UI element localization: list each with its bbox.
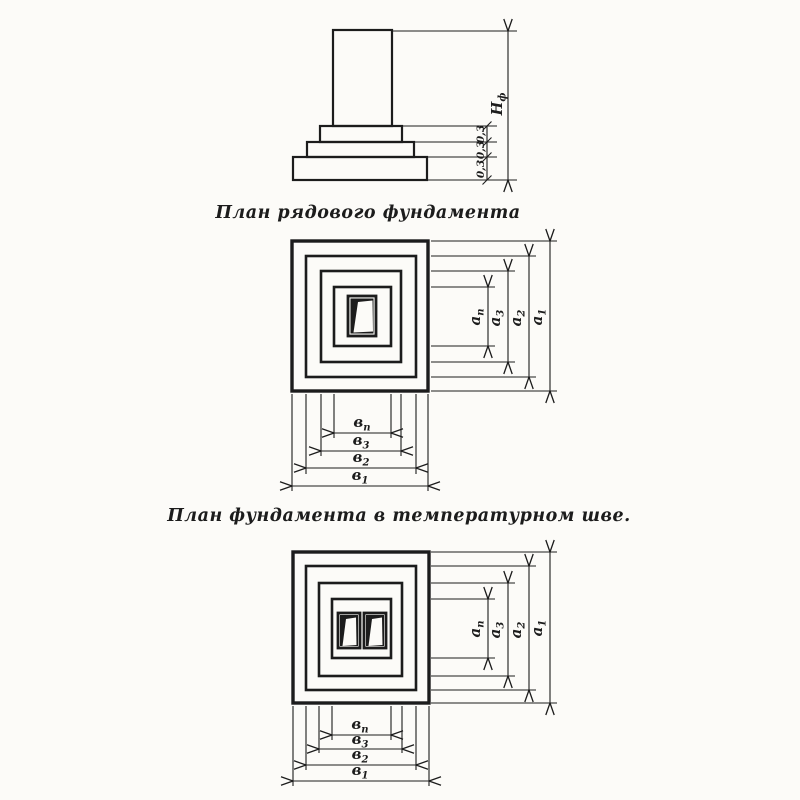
elevation-step-1 (320, 126, 402, 142)
dim-label-a2: а2 (507, 622, 528, 639)
plan-ordinary-title: План рядового фундамента (214, 203, 520, 223)
elevation-column (333, 30, 392, 126)
dim-label-step-1: 0,3 (475, 125, 487, 143)
dim-label-a3: а3 (486, 310, 507, 327)
plan2-column-socket-right (364, 613, 386, 648)
foundation-drawing-svg: Нф 0,3 0,3 0,3 План рядового фундамента … (0, 0, 800, 800)
dim-label-a1: а1 (528, 309, 549, 326)
plan2-column-socket-left (338, 613, 360, 648)
elevation-section: Нф 0,3 0,3 0,3 (293, 30, 517, 185)
dim-label-hf: Нф (489, 93, 509, 117)
dim-label-a2: а2 (507, 310, 528, 327)
plan-joint: ап а3 а2 а1 вп в3 в2 в1 (293, 552, 557, 786)
dim-label-ap: ап (466, 620, 487, 637)
plan1-column-socket (348, 296, 376, 336)
dim-label-a1: а1 (528, 620, 549, 637)
technical-drawing-sheet: Нф 0,3 0,3 0,3 План рядового фундамента … (0, 0, 800, 800)
plan-ordinary: ап а3 а2 а1 вп в3 в2 в1 (292, 241, 557, 491)
elevation-step-3 (293, 157, 427, 180)
plan-joint-title: План фундамента в температурном шве. (166, 506, 630, 526)
elevation-step-2 (307, 142, 414, 157)
dim-label-a3: а3 (486, 622, 507, 639)
dim-label-step-3: 0,3 (475, 160, 487, 178)
dim-label-v1: в1 (352, 466, 369, 487)
dim-label-ap: ап (466, 308, 487, 325)
dim-label-step-2: 0,3 (475, 141, 487, 159)
